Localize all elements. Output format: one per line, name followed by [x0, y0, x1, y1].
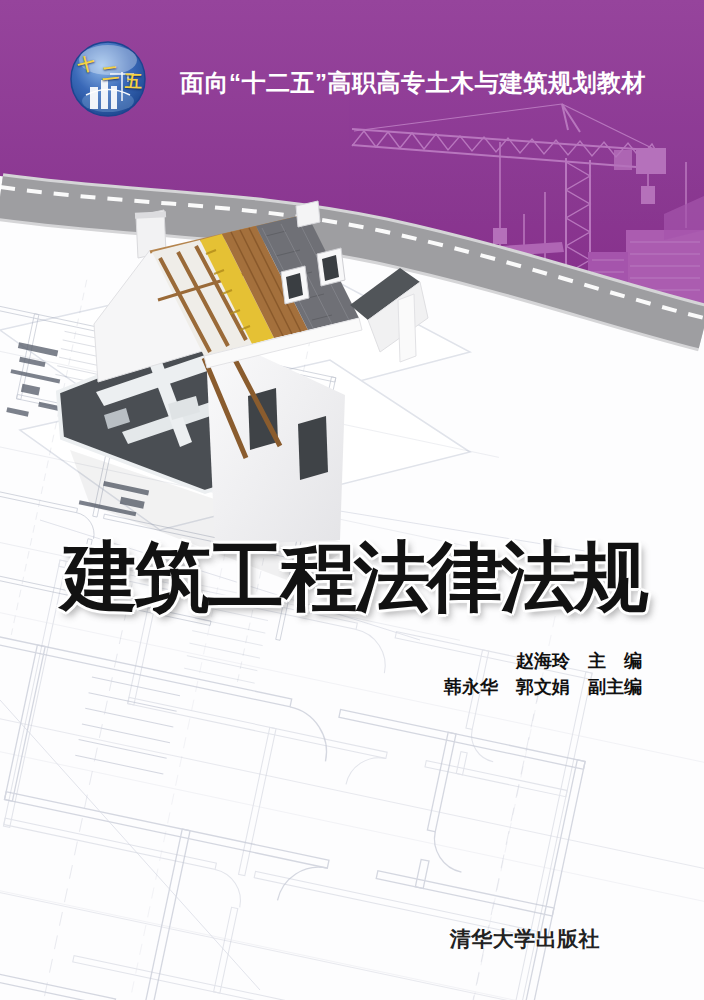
deputy-editor-line: 韩永华 郭文娟 副主编: [444, 674, 642, 700]
cover-artwork: [0, 0, 704, 1000]
badge-char: 二: [101, 61, 120, 86]
book-cover: 十 二 五 面向“十二五”高职高专土木与建筑规划教材 建筑工程法律法规 赵海玲 …: [0, 0, 704, 1000]
publisher-name: 清华大学出版社: [440, 925, 610, 953]
twelfth-five-year-badge: 十 二 五: [71, 42, 145, 116]
badge-char: 五: [125, 70, 143, 94]
badge-char: 十: [75, 51, 97, 77]
book-title: 建筑工程法律法规: [50, 527, 658, 630]
series-title: 面向“十二五”高职高专土木与建筑规划教材: [180, 67, 650, 99]
author-credits: 赵海玲 主 编 韩永华 郭文娟 副主编: [444, 648, 642, 700]
chief-editor-line: 赵海玲 主 编: [444, 648, 642, 674]
